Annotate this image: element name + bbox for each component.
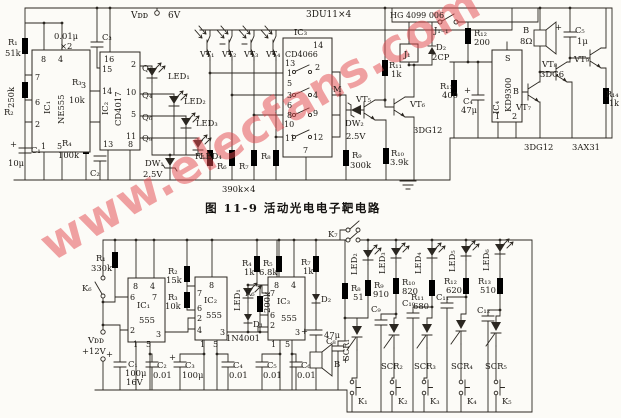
schematic-label: 0.01: [297, 370, 316, 380]
schematic-label: 200: [474, 37, 490, 47]
schematic-label: +: [106, 349, 113, 359]
schematic-label: 1N4001: [226, 333, 260, 343]
schematic-label: SCR₃: [414, 361, 436, 371]
schematic-label: 555: [281, 313, 297, 323]
schematic-label: 3AX31: [572, 142, 600, 152]
resistor-symbol: [273, 150, 279, 166]
schematic-label: K₁: [358, 396, 368, 406]
resistor-symbol: [383, 148, 389, 164]
schematic-label: 1: [287, 69, 292, 78]
schematic-label: 47μ: [461, 105, 478, 115]
schematic-label: 2: [197, 314, 202, 323]
resistor-symbol: [342, 283, 348, 299]
schematic-label: 8: [41, 55, 46, 64]
scr-symbol: [384, 322, 399, 348]
schematic-label: LED₅: [447, 250, 457, 272]
schematic-label: +: [464, 85, 471, 95]
schematic-label: LED₃: [377, 252, 387, 274]
schematic-label: 15: [102, 65, 112, 74]
circuit-schematic: www.elecfans.com 图 11-9 活动光电电子靶电路 Vᴅᴅ6V3…: [0, 0, 621, 418]
supply-terminal: [101, 357, 105, 361]
schematic-label: Vᴅᴅ: [130, 11, 148, 21]
capacitor-symbol: [441, 303, 453, 308]
schematic-label: J₁: [403, 50, 410, 59]
schematic-label: R₆: [245, 288, 255, 298]
schematic-label: K₃: [430, 396, 440, 406]
schematic-label: Q₆: [142, 112, 153, 122]
resistor-symbol: [184, 292, 190, 308]
schematic-label: R₁: [96, 253, 106, 263]
schematic-label: 2CP: [432, 52, 450, 62]
schematic-label: LED₃: [196, 118, 218, 128]
schematic-label: Q₁: [142, 63, 152, 73]
schematic-label: SCR₁: [341, 339, 351, 361]
schematic-label: IC₂: [204, 295, 217, 305]
resistor-symbol: [497, 278, 503, 294]
schematic-label: 8: [287, 111, 292, 120]
schematic-label: +: [10, 139, 17, 149]
transistor-symbol: [522, 82, 539, 102]
schematic-label: LED₆: [481, 249, 491, 271]
push-button-symbol: [390, 380, 400, 395]
schematic-label: B: [334, 359, 340, 369]
schematic-label: 12: [313, 133, 323, 142]
schematic-label: 5: [146, 340, 151, 349]
schematic-label: SCR₂: [381, 361, 403, 371]
schematic-label: VT₄: [265, 50, 280, 59]
schematic-label: LED₄: [413, 252, 423, 274]
schematic-label: 3DG12: [524, 142, 553, 152]
schematic-label: R₄: [62, 138, 72, 148]
switch-k7: [346, 221, 360, 242]
schematic-label: 7: [197, 289, 202, 298]
schematic-label: 555: [139, 315, 155, 325]
resistor-symbol: [343, 150, 349, 166]
schematic-label: R₅: [195, 151, 205, 161]
schematic-label: 7: [152, 293, 157, 302]
push-button-symbol: [459, 380, 469, 395]
schematic-label: C₁₂: [477, 305, 490, 315]
schematic-label: 2: [315, 63, 320, 72]
schematic-label: 5: [213, 340, 218, 349]
schematic-label: IC₁: [42, 101, 52, 114]
capacitor-symbol: [407, 313, 419, 318]
schematic-label: 6: [270, 311, 275, 320]
schematic-label: 3: [156, 330, 161, 339]
schematic-label: C₉: [371, 304, 381, 314]
schematic-label: 6.8k: [259, 267, 278, 277]
schematic-label: 2: [35, 120, 40, 129]
schematic-label: C₃: [102, 32, 112, 42]
capacitor-symbol: [310, 330, 322, 335]
capacitor-symbol: [482, 316, 494, 321]
transistor-symbol: [388, 97, 405, 117]
schematic-label: LED₂: [184, 96, 206, 106]
schematic-label: 7: [303, 146, 308, 155]
schematic-label: 400: [442, 90, 458, 100]
schematic-label: D₂: [321, 294, 331, 304]
schematic-label: VT₁: [199, 50, 214, 59]
capacitor-symbol: [375, 320, 387, 325]
schematic-label: DW₁: [145, 158, 164, 168]
bottom-circuit: [95, 221, 532, 412]
schematic-label: +: [555, 22, 562, 32]
schematic-label: VT₅: [355, 94, 372, 104]
schematic-label: NE555: [56, 95, 66, 124]
schematic-label: 14: [102, 87, 112, 96]
schematic-label: C₅: [267, 360, 277, 370]
schematic-label: 5: [131, 110, 136, 119]
resistor-symbol: [463, 278, 469, 294]
schematic-label: K₆: [82, 283, 92, 293]
schematic-label: 11: [285, 134, 295, 143]
schematic-label: B: [513, 87, 519, 96]
schematic-label: 3: [220, 328, 225, 337]
schematic-label: 4: [150, 282, 155, 291]
resistor-symbol: [184, 266, 190, 282]
scr-symbol: [451, 318, 466, 344]
schematic-label: 0.01: [153, 370, 172, 380]
schematic-label: 4: [313, 91, 318, 100]
schematic-label: SCR₄: [451, 361, 473, 371]
ground-icon: [400, 181, 416, 189]
schematic-label: 1: [495, 112, 500, 121]
schematic-label: +12V: [82, 346, 107, 356]
schematic-label: LED₂: [349, 253, 359, 275]
schematic-label: 1: [271, 340, 276, 349]
schematic-label: 3.9k: [390, 157, 409, 167]
schematic-label: K₅: [502, 396, 512, 406]
schematic-label: 4: [291, 281, 296, 290]
schematic-label: K₂: [398, 396, 408, 406]
schematic-label: 330k: [91, 263, 113, 273]
schematic-label: DW₂: [345, 118, 364, 128]
schematic-label: C₃: [185, 360, 195, 370]
capacitor-symbol: [94, 156, 106, 161]
schematic-label: 6: [197, 304, 202, 313]
schematic-label: 51: [353, 292, 364, 302]
schematic-label: 3DG12: [413, 125, 442, 135]
schematic-label: D₂: [436, 42, 446, 52]
schematic-label: 6: [35, 98, 40, 107]
schematic-label: 250k: [6, 86, 16, 108]
schematic-label: LED₁: [168, 71, 190, 81]
schematic-label: C₄: [233, 360, 243, 370]
schematic-label: R₉: [352, 150, 362, 160]
schematic-label: 4: [58, 55, 63, 64]
schematic-label: K₇: [328, 229, 338, 239]
schematic-label: 2: [270, 321, 275, 330]
schematic-label: IC₁: [137, 300, 150, 310]
schematic-label: CD4017: [113, 92, 123, 126]
resistor-symbol: [22, 82, 28, 98]
schematic-label: 16: [104, 55, 114, 64]
schematic-label: 1k: [609, 99, 619, 108]
schematic-label: 13: [285, 59, 295, 68]
schematic-label: C₁₀: [402, 298, 416, 308]
schematic-label: M: [333, 84, 342, 94]
schematic-label: 10: [284, 120, 294, 129]
capacitor-symbol: [472, 95, 484, 100]
figure-title: 图 11-9 活动光电电子靶电路: [205, 201, 381, 215]
resistor-symbol: [112, 252, 118, 268]
schematic-label: C₆: [301, 360, 311, 370]
schematic-label: VT₃: [243, 50, 258, 59]
schematic-label: 6: [287, 101, 292, 110]
schematic-label: 0.01: [263, 370, 282, 380]
switch-k6: [95, 276, 105, 298]
schematic-label: 9: [313, 109, 318, 118]
schematic-label: 3DG6: [540, 69, 564, 79]
resistor-symbol: [429, 280, 435, 296]
schematic-label: IC₃: [277, 296, 290, 306]
push-button-symbol: [422, 380, 432, 395]
schematic-label: 8Ω: [520, 36, 532, 46]
schematic-label: C₂: [90, 168, 100, 178]
schematic-label: R₆: [217, 161, 227, 171]
schematic-label: S: [505, 54, 510, 63]
led-icon: [495, 239, 513, 258]
schematic-label: Q₄: [142, 90, 153, 100]
schematic-label: 5: [287, 79, 292, 88]
schematic-label: Vᴅᴅ: [87, 335, 104, 345]
schematic-label: 15k: [166, 275, 183, 285]
schematic-label: 1k: [244, 267, 255, 277]
push-button-symbol: [350, 380, 360, 395]
schematic-label: 0.01μ: [54, 31, 79, 41]
schematic-label: 3: [287, 91, 292, 100]
schematic-label: 7: [35, 73, 40, 82]
schematic-label: 510: [480, 285, 496, 295]
watermark: www.elecfans.com: [31, 0, 490, 272]
schematic-label: VT₉: [573, 54, 590, 64]
schematic-label: ×2: [60, 41, 72, 51]
schematic-label: 2: [130, 326, 135, 335]
schematic-label: 300k: [350, 160, 372, 170]
schematic-label: C₅: [575, 25, 585, 35]
vdd-terminal: [155, 11, 160, 16]
speaker-icon: [534, 22, 556, 54]
schematic-label: 910: [373, 289, 389, 299]
schematic-label: 2.5V: [143, 169, 163, 179]
scr-symbol: [417, 322, 432, 348]
schematic-label: 1μ: [577, 36, 588, 46]
schematic-label: 1: [133, 340, 138, 349]
schematic-label: 51k: [5, 48, 22, 58]
diode-symbol: [312, 294, 320, 303]
schematic-label: 10: [126, 88, 136, 97]
schematic-label: J₁₋₁: [433, 25, 449, 35]
schematic-label: IC₂: [100, 102, 110, 115]
capacitor-symbol: [114, 362, 126, 367]
schematic-label: LED₁: [232, 289, 242, 311]
schematic-label: 4: [197, 326, 202, 335]
schematic-label: 3: [81, 81, 86, 90]
schematic-label: 2.5V: [346, 131, 366, 141]
schematic-label: 555: [206, 310, 222, 320]
scanned-schematic-page: www.elecfans.com 图 11-9 活动光电电子靶电路 Vᴅᴅ6V3…: [0, 0, 621, 418]
schematic-label: VT₆: [409, 99, 426, 109]
schematic-label: +: [169, 352, 176, 362]
schematic-label: 13: [103, 140, 113, 149]
schematic-label: +: [301, 326, 308, 336]
schematic-label: B: [523, 25, 529, 35]
schematic-label: 100k: [58, 150, 80, 160]
resistor-symbol: [393, 278, 399, 294]
push-button-symbol: [494, 380, 504, 395]
schematic-label: SCR₅: [485, 361, 507, 371]
schematic-label: C₂: [157, 360, 167, 370]
schematic-label: R₂: [4, 107, 14, 117]
schematic-label: VT₇: [515, 102, 532, 112]
schematic-label: 3DU11×4: [306, 10, 352, 20]
schematic-label: 2: [512, 112, 517, 121]
schematic-label: 6: [130, 293, 135, 302]
schematic-label: K₄: [467, 396, 477, 406]
schematic-label: 10k: [69, 95, 86, 105]
schematic-label: 8: [133, 282, 138, 291]
schematic-label: 3: [295, 328, 300, 337]
supply-terminal: [101, 330, 105, 334]
resistor-symbol: [22, 38, 28, 54]
schematic-label: IC₃: [294, 27, 307, 37]
capacitor-symbol: [91, 42, 103, 47]
schematic-label: 10μ: [8, 158, 25, 168]
schematic-label: 8: [209, 281, 214, 290]
schematic-label: 1k: [303, 266, 314, 276]
schematic-label: KD9300: [503, 78, 513, 112]
schematic-label: 100μ: [182, 370, 204, 380]
schematic-label: 5: [57, 142, 62, 151]
schematic-label: 10k: [165, 301, 182, 311]
schematic-label: R₇: [239, 161, 249, 171]
schematic-label: 5: [285, 340, 290, 349]
schematic-label: C₁: [31, 145, 41, 155]
schematic-label: 2: [131, 60, 136, 69]
schematic-label: 1: [200, 340, 205, 349]
schematic-label: R₁₄: [606, 90, 618, 99]
schematic-label: 1: [41, 142, 46, 151]
diode-symbol: [244, 314, 252, 323]
schematic-label: 6V: [168, 11, 181, 21]
resistor-symbol: [365, 280, 371, 296]
schematic-label: D₁: [253, 319, 263, 329]
schematic-label: HG 4099 006: [390, 11, 444, 20]
schematic-label: C₁₁: [436, 292, 449, 302]
schematic-label: CD4066: [285, 50, 318, 59]
led-icon: [391, 243, 409, 262]
led-icon: [427, 243, 445, 262]
schematic-label: 0.01: [229, 370, 248, 380]
schematic-label: R₈: [261, 151, 271, 161]
schematic-label: 680: [413, 301, 429, 311]
schematic-label: Q₉: [142, 133, 153, 143]
schematic-label: 14: [313, 41, 323, 50]
schematic-label: VT₈: [541, 59, 558, 69]
schematic-label: 8: [128, 140, 133, 149]
schematic-label: 7: [270, 289, 275, 298]
schematic-label: 1k: [391, 69, 402, 79]
led-icon: [461, 241, 479, 260]
schematic-label: 390k×4: [222, 184, 255, 194]
schematic-label: C₈: [326, 336, 336, 346]
schematic-label: 16V: [126, 377, 144, 387]
schematic-label: R₁: [8, 37, 18, 47]
resistor-symbol: [313, 256, 319, 272]
schematic-label: VT₂: [221, 50, 236, 59]
